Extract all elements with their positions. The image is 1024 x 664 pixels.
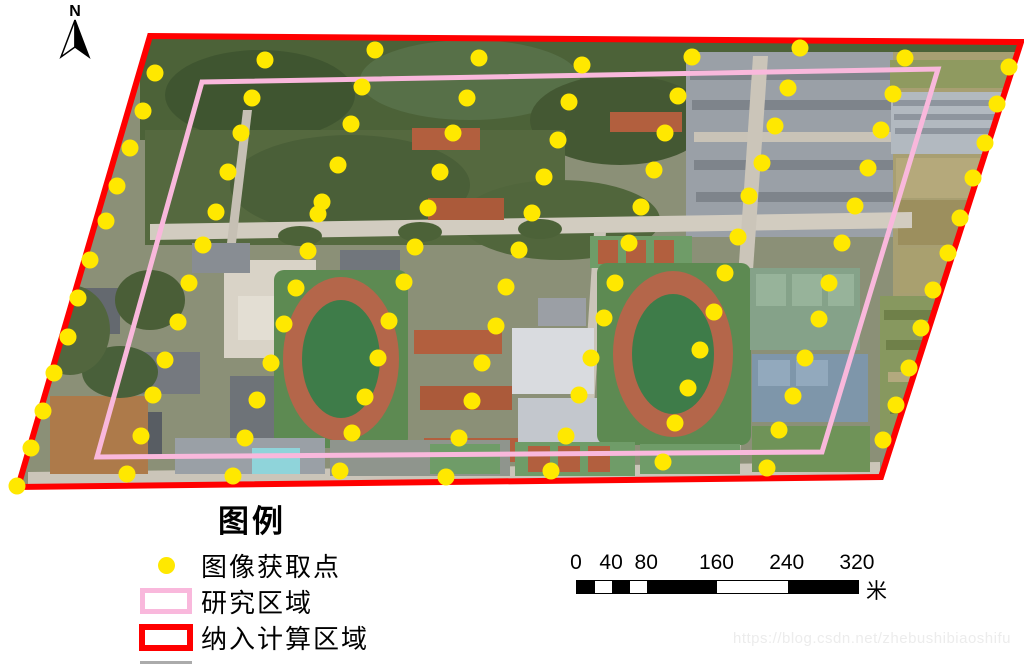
legend-point-swatch: [158, 557, 175, 574]
acquisition-point: [834, 235, 851, 252]
acquisition-point: [147, 65, 164, 82]
acquisition-point: [343, 116, 360, 133]
acquisition-point: [571, 387, 588, 404]
figure-canvas: N 图例 图像获取点 研究区域 纳入计算区域 0408: [0, 0, 1024, 664]
acquisition-point: [754, 155, 771, 172]
acquisition-point: [780, 80, 797, 97]
legend-study-swatch: [140, 588, 192, 614]
scalebar-tick-label: 320: [839, 551, 874, 575]
legend-point-swatch-cell: [139, 557, 193, 574]
scalebar-tick-label: 160: [699, 551, 734, 575]
scalebar-unit: 米: [866, 575, 887, 605]
acquisition-point: [60, 329, 77, 346]
legend-item-label: 图像获取点: [201, 547, 341, 584]
acquisition-point: [145, 387, 162, 404]
acquisition-point: [488, 318, 505, 335]
acquisition-point: [181, 275, 198, 292]
acquisition-point: [300, 243, 317, 260]
acquisition-point: [98, 213, 115, 230]
acquisition-point: [471, 50, 488, 67]
acquisition-point: [543, 463, 560, 480]
acquisition-point: [276, 316, 293, 333]
legend-item-label: 研究区域: [201, 583, 313, 620]
acquisition-point: [561, 94, 578, 111]
acquisition-point: [767, 118, 784, 135]
acquisition-point: [451, 430, 468, 447]
acquisition-point: [459, 90, 476, 107]
legend-study-swatch-cell: [139, 588, 193, 614]
scalebar: 04080160240320 米: [576, 551, 906, 603]
acquisition-point: [925, 282, 942, 299]
scalebar-segment: [612, 581, 630, 593]
acquisition-point: [330, 157, 347, 174]
acquisition-point: [692, 342, 709, 359]
acquisition-point: [897, 50, 914, 67]
acquisition-point: [344, 425, 361, 442]
acquisition-point: [233, 125, 250, 142]
scalebar-bar: [576, 580, 859, 594]
acquisition-point: [952, 210, 969, 227]
acquisition-point: [717, 265, 734, 282]
acquisition-point: [965, 170, 982, 187]
acquisition-point: [771, 422, 788, 439]
legend-item-calc-area: 纳入计算区域: [139, 621, 369, 653]
acquisition-point: [741, 188, 758, 205]
scalebar-tick-label: 80: [635, 551, 658, 575]
acquisition-point: [35, 403, 52, 420]
acquisition-point: [583, 350, 600, 367]
acquisition-point: [633, 199, 650, 216]
acquisition-point: [847, 198, 864, 215]
acquisition-point: [498, 279, 515, 296]
acquisition-point: [135, 103, 152, 120]
acquisition-point: [655, 454, 672, 471]
acquisition-point: [888, 397, 905, 414]
acquisition-point: [170, 314, 187, 331]
acquisition-point: [396, 274, 413, 291]
acquisition-point: [550, 132, 567, 149]
acquisition-point: [792, 40, 809, 57]
acquisition-point: [596, 310, 613, 327]
acquisition-point: [244, 90, 261, 107]
acquisition-point: [821, 275, 838, 292]
scalebar-segment: [630, 581, 648, 593]
acquisition-point: [860, 160, 877, 177]
acquisition-point: [913, 320, 930, 337]
acquisition-point: [432, 164, 449, 181]
acquisition-point: [438, 469, 455, 486]
acquisition-point: [370, 350, 387, 367]
acquisition-point: [249, 392, 266, 409]
acquisition-point: [357, 389, 374, 406]
acquisition-point: [474, 355, 491, 372]
acquisition-point: [1001, 59, 1018, 76]
acquisition-point: [225, 468, 242, 485]
legend-title: 图例: [218, 496, 369, 541]
acquisition-point: [23, 440, 40, 457]
north-arrow-icon: N: [61, 3, 89, 57]
acquisition-point: [785, 388, 802, 405]
acquisition-point: [109, 178, 126, 195]
acquisition-point: [9, 478, 26, 495]
scalebar-segment: [788, 581, 858, 593]
acquisition-point: [288, 280, 305, 297]
scalebar-segment: [647, 581, 717, 593]
acquisition-point: [420, 200, 437, 217]
acquisition-point: [122, 140, 139, 157]
acquisition-point: [667, 415, 684, 432]
acquisition-point: [989, 96, 1006, 113]
acquisition-point: [82, 252, 99, 269]
acquisition-point: [220, 164, 237, 181]
scalebar-segment: [717, 581, 787, 593]
acquisition-point: [367, 42, 384, 59]
acquisition-point: [208, 204, 225, 221]
legend-item-acquisition-point: 图像获取点: [139, 549, 369, 581]
legend-item-label: 纳入计算区域: [201, 619, 369, 656]
scalebar-segment: [577, 581, 595, 593]
acquisition-point: [558, 428, 575, 445]
acquisition-point: [237, 430, 254, 447]
acquisition-point: [759, 460, 776, 477]
acquisition-point: [157, 352, 174, 369]
acquisition-point: [574, 57, 591, 74]
acquisition-point: [70, 290, 87, 307]
acquisition-point: [670, 88, 687, 105]
acquisition-point: [257, 52, 274, 69]
acquisition-point: [464, 393, 481, 410]
scalebar-tick-label: 40: [599, 551, 622, 575]
acquisition-point: [706, 304, 723, 321]
acquisition-point: [46, 365, 63, 382]
acquisition-point: [133, 428, 150, 445]
acquisition-point: [797, 350, 814, 367]
acquisition-point: [873, 122, 890, 139]
acquisition-point: [310, 206, 327, 223]
legend: 图例 图像获取点 研究区域 纳入计算区域: [139, 496, 369, 664]
acquisition-point: [445, 125, 462, 142]
scalebar-tick-label: 240: [769, 551, 804, 575]
acquisition-point: [524, 205, 541, 222]
acquisition-point: [621, 235, 638, 252]
acquisition-point: [901, 360, 918, 377]
acquisition-point: [885, 86, 902, 103]
acquisition-point: [811, 311, 828, 328]
acquisition-point: [680, 380, 697, 397]
acquisition-point: [332, 463, 349, 480]
acquisition-point: [511, 242, 528, 259]
acquisition-point: [684, 49, 701, 66]
scalebar-segment: [595, 581, 613, 593]
acquisition-point: [195, 237, 212, 254]
acquisition-point: [730, 229, 747, 246]
legend-item-study-area: 研究区域: [139, 585, 369, 617]
acquisition-point: [536, 169, 553, 186]
legend-calc-swatch: [139, 624, 193, 651]
acquisition-point: [646, 162, 663, 179]
watermark: https://blog.csdn.net/zhebushibiaoshifu: [733, 630, 1011, 647]
acquisition-point: [119, 466, 136, 483]
acquisition-point: [381, 313, 398, 330]
acquisition-point: [875, 432, 892, 449]
acquisition-point: [263, 355, 280, 372]
acquisition-point: [407, 239, 424, 256]
acquisition-point: [657, 125, 674, 142]
scalebar-tick-label: 0: [570, 551, 582, 575]
acquisition-point: [607, 275, 624, 292]
orthophoto-collage: [10, 25, 1024, 495]
acquisition-point: [354, 79, 371, 96]
acquisition-point: [977, 135, 994, 152]
legend-calc-swatch-cell: [139, 624, 193, 651]
scalebar-ticks: 04080160240320: [576, 551, 857, 578]
acquisition-point: [940, 245, 957, 262]
north-label: N: [69, 3, 81, 20]
